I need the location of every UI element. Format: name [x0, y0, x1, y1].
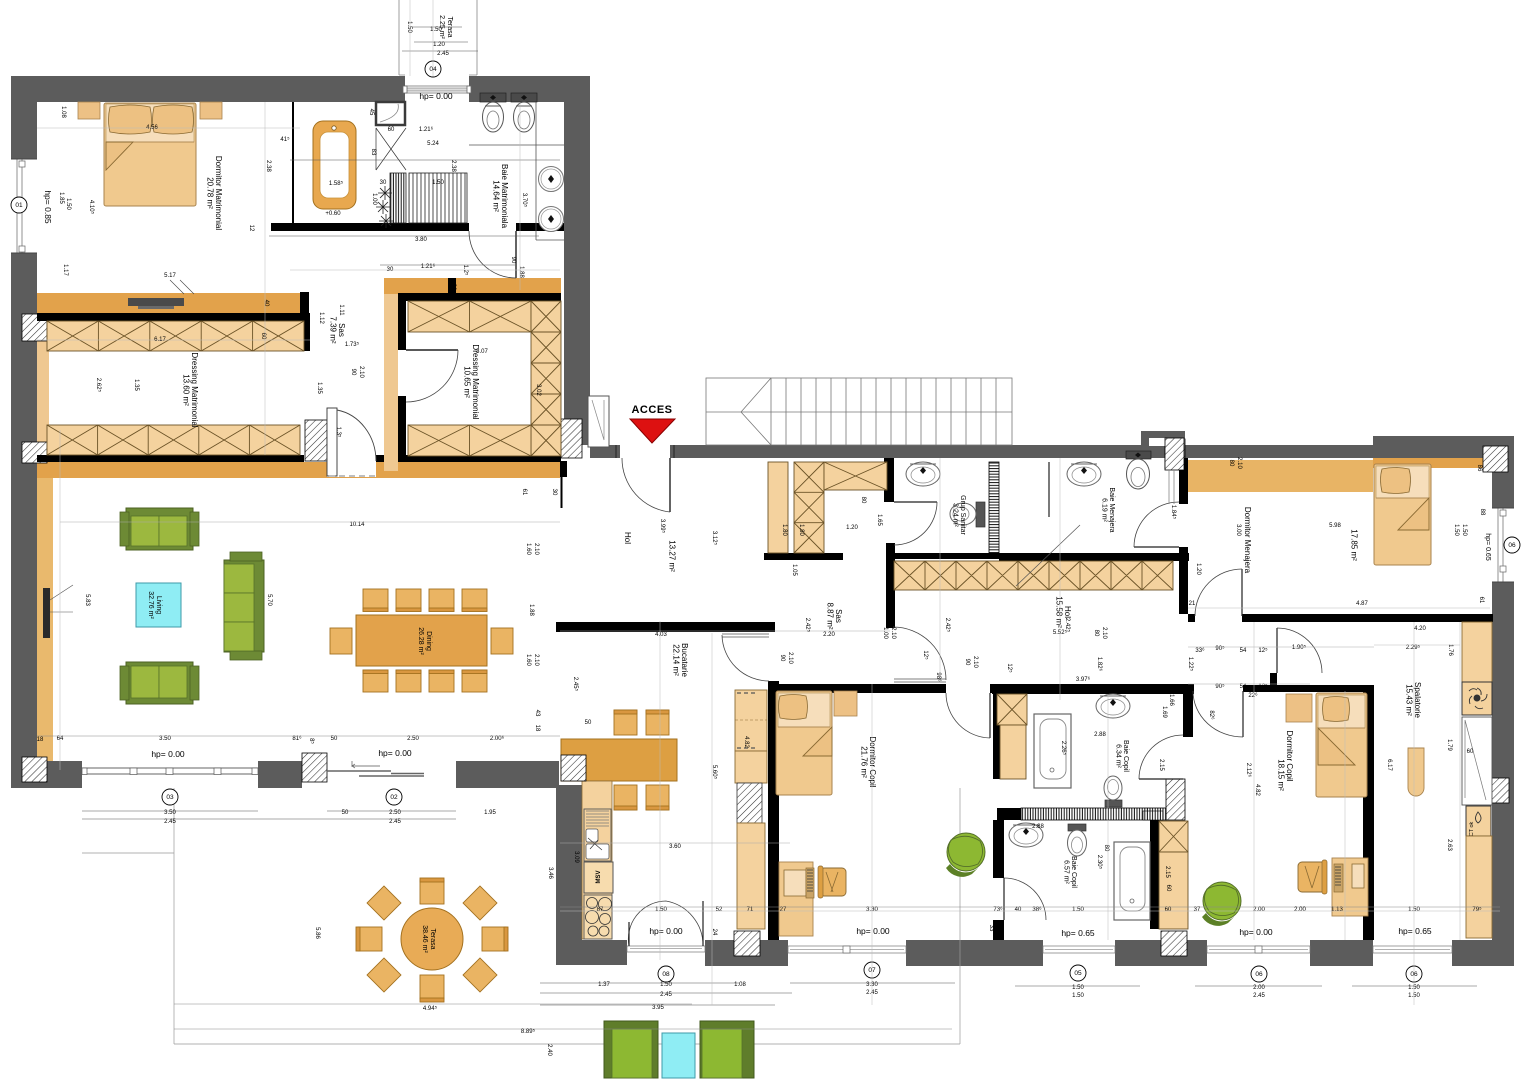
svg-text:1.50: 1.50 [65, 198, 71, 210]
svg-text:2.10: 2.10 [1101, 627, 1107, 639]
svg-text:2.88: 2.88 [1032, 824, 1044, 830]
svg-text:2.10: 2.10 [890, 627, 896, 639]
svg-text:37: 37 [1194, 907, 1201, 913]
svg-text:80: 80 [860, 497, 866, 504]
svg-text:40: 40 [263, 300, 269, 307]
svg-text:3.60: 3.60 [669, 844, 681, 850]
svg-text:hp= 0.00: hp= 0.00 [151, 749, 185, 759]
svg-text:21: 21 [1189, 601, 1196, 607]
svg-text:4.20: 4.20 [1414, 626, 1426, 632]
svg-text:3.30: 3.30 [866, 907, 878, 913]
svg-text:1.95: 1.95 [484, 810, 496, 816]
svg-text:21.76 m²: 21.76 m² [860, 746, 869, 778]
svg-text:61: 61 [1478, 597, 1484, 604]
svg-text:90: 90 [779, 655, 785, 662]
svg-text:hp= 0.00: hp= 0.00 [649, 926, 683, 936]
svg-text:3.97⁶: 3.97⁶ [1076, 676, 1091, 683]
svg-text:45: 45 [368, 109, 374, 116]
svg-text:1.00: 1.00 [371, 193, 377, 205]
svg-text:50: 50 [331, 736, 338, 742]
svg-text:90: 90 [350, 369, 356, 376]
svg-text:38.46 m²: 38.46 m² [421, 925, 428, 953]
svg-text:hp= 0.00: hp= 0.00 [856, 926, 890, 936]
svg-text:Terasa: Terasa [429, 928, 436, 949]
svg-text:5.98: 5.98 [1329, 523, 1341, 529]
svg-text:1.50: 1.50 [432, 180, 444, 186]
svg-text:2.30⁵: 2.30⁵ [1096, 855, 1103, 870]
svg-text:Baie Menajera: Baie Menajera [1108, 487, 1115, 532]
svg-text:2.20: 2.20 [823, 632, 835, 638]
svg-text:2.15: 2.15 [1164, 866, 1170, 878]
svg-text:82⁶: 82⁶ [1208, 710, 1215, 720]
svg-text:1.73⁵: 1.73⁵ [345, 341, 360, 348]
svg-text:2.45: 2.45 [164, 819, 176, 825]
svg-text:13.60 m²: 13.60 m² [182, 374, 191, 406]
svg-text:1.88: 1.88 [518, 266, 524, 278]
svg-text:1.69: 1.69 [1161, 706, 1167, 718]
svg-text:54: 54 [1240, 684, 1247, 690]
svg-text:1.80: 1.80 [798, 524, 804, 536]
svg-text:MSV: MSV [596, 870, 602, 883]
svg-text:3.07: 3.07 [476, 349, 488, 355]
svg-text:2.45: 2.45 [866, 990, 878, 996]
svg-text:5.86: 5.86 [314, 927, 320, 939]
svg-text:8.87 m²: 8.87 m² [826, 602, 835, 629]
svg-text:Living: Living [155, 596, 162, 614]
svg-text:hp= 0.65: hp= 0.65 [1398, 926, 1432, 936]
svg-text:26.28 m²: 26.28 m² [417, 627, 424, 655]
svg-text:30: 30 [450, 284, 456, 291]
svg-text:1.08: 1.08 [60, 106, 66, 118]
svg-text:88: 88 [1479, 509, 1485, 516]
svg-text:18: 18 [37, 737, 44, 743]
svg-text:15.43 m²: 15.43 m² [1405, 684, 1414, 716]
svg-text:01: 01 [15, 202, 23, 209]
svg-text:17.85 m²: 17.85 m² [1350, 529, 1359, 561]
svg-text:03: 03 [166, 794, 174, 801]
svg-text:1.21⁶: 1.21⁶ [421, 263, 436, 270]
svg-text:61: 61 [521, 489, 527, 496]
svg-text:15.58 m²: 15.58 m² [1055, 596, 1064, 628]
svg-text:hp= 0.00: hp= 0.00 [1239, 927, 1273, 937]
svg-text:1.88: 1.88 [528, 604, 534, 616]
svg-text:2.88: 2.88 [1094, 732, 1106, 738]
svg-text:5.17: 5.17 [164, 273, 176, 279]
svg-text:1.05: 1.05 [791, 564, 797, 576]
svg-text:3.70⁵: 3.70⁵ [521, 193, 528, 208]
svg-text:Hol: Hol [623, 532, 632, 544]
svg-text:1.20: 1.20 [1195, 563, 1201, 575]
svg-text:4.82: 4.82 [743, 736, 749, 748]
svg-text:8.89⁵: 8.89⁵ [521, 1028, 536, 1035]
svg-text:32.76 m²: 32.76 m² [147, 591, 154, 619]
svg-text:30: 30 [380, 180, 387, 186]
svg-text:1.2⁵: 1.2⁵ [462, 265, 469, 276]
svg-text:1.13: 1.13 [1331, 907, 1343, 913]
svg-text:2.10: 2.10 [533, 654, 539, 666]
svg-text:4.87: 4.87 [1356, 601, 1368, 607]
svg-text:27: 27 [780, 907, 787, 913]
svg-text:1.35: 1.35 [316, 382, 322, 394]
svg-text:1.65: 1.65 [876, 514, 882, 526]
svg-text:90⁵: 90⁵ [1215, 645, 1225, 652]
svg-text:1.20: 1.20 [433, 42, 445, 48]
svg-text:3.24 m²: 3.24 m² [952, 503, 959, 527]
svg-text:3.02: 3.02 [535, 384, 541, 396]
svg-text:43: 43 [534, 710, 540, 717]
svg-text:6.19 m²: 6.19 m² [1101, 498, 1108, 522]
svg-text:33: 33 [988, 925, 994, 932]
svg-text:2.00: 2.00 [996, 839, 1002, 851]
svg-text:1.85: 1.85 [58, 192, 64, 204]
svg-text:2.50: 2.50 [407, 736, 419, 742]
svg-text:2.10: 2.10 [972, 656, 978, 668]
svg-text:10.14: 10.14 [349, 522, 365, 528]
svg-text:06: 06 [1255, 971, 1263, 978]
svg-text:80: 80 [1093, 630, 1099, 637]
svg-text:Grup Sanitar: Grup Sanitar [959, 495, 966, 535]
svg-text:2.10: 2.10 [787, 652, 793, 664]
svg-text:90: 90 [510, 257, 516, 264]
svg-text:1.22⁵: 1.22⁵ [1187, 657, 1194, 672]
svg-text:2.10: 2.10 [533, 543, 539, 555]
svg-text:4.03: 4.03 [655, 632, 667, 638]
svg-text:3.95: 3.95 [652, 1005, 664, 1011]
svg-text:12: 12 [248, 225, 254, 232]
svg-text:1.50: 1.50 [655, 907, 667, 913]
svg-text:60: 60 [1165, 885, 1171, 892]
svg-text:2.15: 2.15 [1158, 759, 1164, 771]
svg-text:1.12: 1.12 [318, 312, 324, 324]
svg-text:8⁵: 8⁵ [308, 738, 315, 744]
svg-text:1.50: 1.50 [1461, 524, 1467, 536]
svg-text:4.10⁵: 4.10⁵ [88, 200, 95, 215]
svg-text:2.26⁵: 2.26⁵ [1060, 741, 1067, 756]
svg-text:5.70: 5.70 [266, 594, 272, 606]
svg-text:3.99⁵: 3.99⁵ [659, 519, 666, 534]
svg-text:08: 08 [662, 971, 670, 978]
svg-text:1.50: 1.50 [430, 27, 442, 33]
svg-text:3.00: 3.00 [1235, 524, 1241, 536]
svg-text:1.80: 1.80 [781, 524, 787, 536]
svg-text:14.64 m²: 14.64 m² [492, 180, 501, 212]
svg-text:1.60: 1.60 [525, 543, 531, 555]
svg-text:hp= 0.00: hp= 0.00 [378, 748, 412, 758]
svg-text:13.27 m²: 13.27 m² [668, 540, 677, 572]
svg-text:12⁵: 12⁵ [922, 650, 929, 660]
svg-text:2.12⁶: 2.12⁶ [1245, 763, 1252, 778]
svg-text:Dormitor Menajera: Dormitor Menajera [1243, 507, 1252, 574]
svg-text:1.50: 1.50 [1408, 907, 1420, 913]
svg-text:60: 60 [1467, 749, 1474, 755]
svg-text:CT ok: CT ok [1469, 821, 1475, 836]
svg-text:1.17: 1.17 [62, 264, 68, 276]
svg-text:ACCES: ACCES [631, 404, 672, 416]
svg-text:12⁵: 12⁵ [1258, 647, 1268, 654]
svg-text:2.38: 2.38 [450, 160, 456, 172]
svg-text:Dining: Dining [425, 631, 432, 651]
svg-text:4.82: 4.82 [1254, 784, 1260, 796]
svg-text:30: 30 [551, 489, 557, 496]
svg-text:02: 02 [390, 794, 398, 801]
svg-text:10.65 m²: 10.65 m² [463, 366, 472, 398]
svg-text:87: 87 [597, 907, 604, 913]
svg-text:90: 90 [964, 659, 970, 666]
svg-text:2.62⁵: 2.62⁵ [95, 378, 102, 393]
svg-text:40: 40 [1015, 907, 1022, 913]
svg-text:6.17: 6.17 [1386, 759, 1392, 771]
svg-text:1.66: 1.66 [1168, 694, 1174, 706]
svg-text:20.78 m²: 20.78 m² [206, 177, 215, 209]
svg-text:1.00: 1.00 [882, 627, 888, 639]
svg-text:1.50: 1.50 [1072, 907, 1084, 913]
svg-text:2.10: 2.10 [1236, 457, 1242, 469]
svg-text:2.63: 2.63 [1446, 839, 1452, 851]
svg-text:hp= 0.65: hp= 0.65 [1061, 928, 1095, 938]
svg-text:1.50: 1.50 [1072, 993, 1084, 999]
svg-text:2.45: 2.45 [437, 51, 449, 57]
svg-text:1.84⁵: 1.84⁵ [1170, 505, 1177, 520]
svg-text:2.45: 2.45 [1253, 993, 1265, 999]
svg-text:18: 18 [534, 725, 540, 732]
svg-text:hp= 0.65: hp= 0.65 [1484, 533, 1491, 561]
svg-text:3.12⁵: 3.12⁵ [711, 531, 718, 546]
svg-text:2.42⁵: 2.42⁵ [944, 618, 951, 633]
svg-text:80: 80 [1228, 460, 1234, 467]
svg-text:2.45: 2.45 [389, 819, 401, 825]
svg-text:52: 52 [716, 907, 723, 913]
svg-text:60: 60 [1165, 907, 1172, 913]
svg-text:2.45⁵: 2.45⁵ [572, 677, 579, 692]
svg-text:71: 71 [747, 907, 754, 913]
svg-text:2.42⁵: 2.42⁵ [804, 618, 811, 633]
svg-text:3.80: 3.80 [415, 237, 427, 243]
svg-text:1.79: 1.79 [1446, 739, 1452, 751]
svg-text:18.15 m²: 18.15 m² [1277, 759, 1286, 791]
svg-text:6.34 m²: 6.34 m² [1115, 744, 1122, 768]
svg-text:5.83: 5.83 [84, 594, 90, 606]
svg-text:1.76: 1.76 [1447, 644, 1453, 656]
svg-text:2.10: 2.10 [358, 366, 364, 378]
svg-text:3.50: 3.50 [159, 736, 171, 742]
svg-text:1.50: 1.50 [1408, 993, 1420, 999]
svg-text:1.90⁵: 1.90⁵ [1292, 644, 1307, 651]
svg-text:33⁶: 33⁶ [1195, 647, 1205, 654]
svg-text:3.46: 3.46 [547, 867, 553, 879]
svg-text:60: 60 [388, 127, 395, 133]
svg-text:1.11: 1.11 [338, 304, 344, 316]
svg-text:hp= 0.85: hp= 0.85 [43, 190, 53, 224]
svg-text:64: 64 [57, 736, 64, 742]
svg-text:22.14 m²: 22.14 m² [672, 644, 681, 676]
svg-text:06: 06 [1508, 542, 1516, 549]
svg-text:05: 05 [1074, 970, 1082, 977]
svg-text:98⁶: 98⁶ [935, 672, 942, 682]
svg-text:hp= 0.00: hp= 0.00 [419, 91, 453, 101]
svg-text:1.3⁵: 1.3⁵ [335, 427, 342, 438]
svg-text:1.21⁶: 1.21⁶ [419, 126, 434, 133]
svg-text:1.50: 1.50 [1453, 524, 1459, 536]
svg-text:7.39 m²: 7.39 m² [329, 316, 338, 343]
svg-text:5.24: 5.24 [427, 141, 439, 147]
svg-text:83: 83 [370, 149, 376, 156]
svg-text:4.94⁵: 4.94⁵ [423, 1005, 438, 1012]
svg-text:3.09: 3.09 [573, 851, 579, 863]
svg-text:54: 54 [1240, 648, 1247, 654]
svg-text:50: 50 [585, 720, 592, 726]
svg-text:2.42⁵: 2.42⁵ [1064, 618, 1071, 633]
svg-text:2.38: 2.38 [265, 160, 271, 172]
svg-text:1.82⁶: 1.82⁶ [1096, 657, 1103, 672]
svg-text:22⁶: 22⁶ [1248, 692, 1258, 699]
svg-text:Baie Copil: Baie Copil [1122, 740, 1129, 772]
svg-text:1.60: 1.60 [525, 654, 531, 666]
svg-text:+0.60: +0.60 [325, 211, 341, 217]
svg-text:1.35: 1.35 [133, 379, 139, 391]
svg-text:2.40: 2.40 [546, 1044, 552, 1056]
svg-text:2.00: 2.00 [1253, 907, 1265, 913]
svg-text:1.20: 1.20 [846, 525, 858, 531]
svg-text:6.57 m²: 6.57 m² [1063, 860, 1070, 884]
svg-text:41⁵: 41⁵ [280, 136, 290, 143]
svg-text:Baie Copil: Baie Copil [1070, 856, 1077, 888]
svg-text:1.50: 1.50 [406, 21, 412, 33]
svg-text:2.00: 2.00 [1294, 907, 1306, 913]
svg-text:1.58⁵: 1.58⁵ [329, 180, 344, 187]
svg-text:12⁵: 12⁵ [1006, 663, 1013, 673]
svg-text:86: 86 [1476, 465, 1482, 472]
